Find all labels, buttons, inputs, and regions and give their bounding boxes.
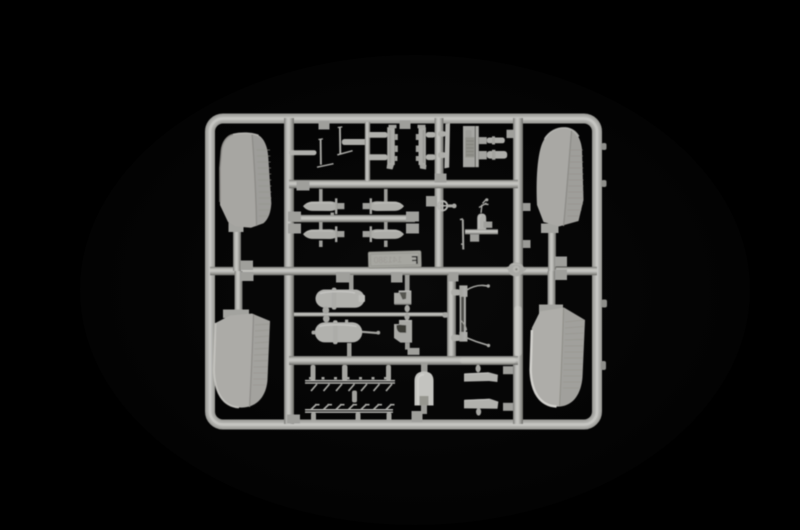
svg-text:141380: 141380 [373,254,402,265]
svg-text:F: F [411,255,418,267]
